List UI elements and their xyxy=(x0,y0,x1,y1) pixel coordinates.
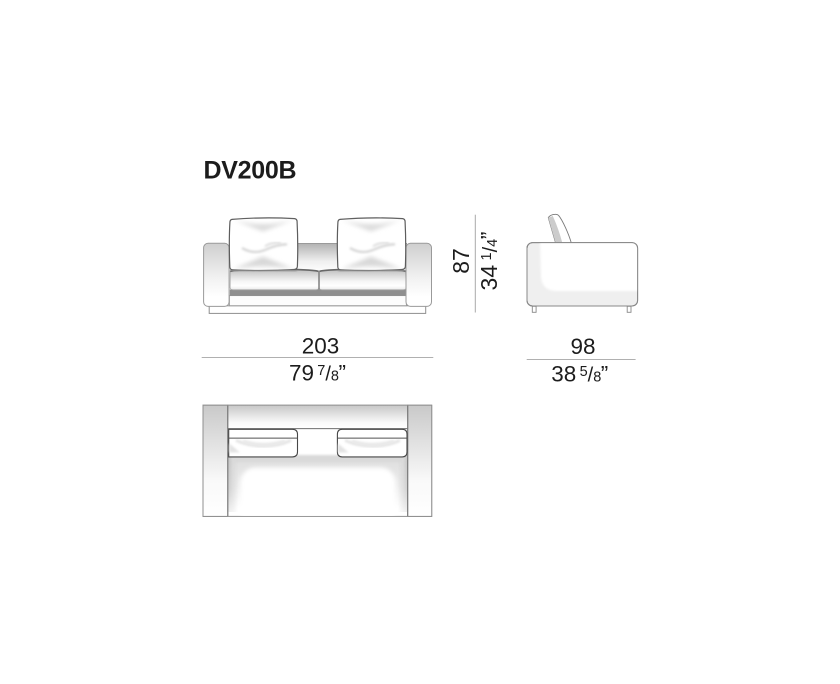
svg-text:203: 203 xyxy=(302,333,340,358)
svg-text:87: 87 xyxy=(448,248,474,274)
svg-text:DV200B: DV200B xyxy=(204,157,297,185)
svg-text:98: 98 xyxy=(570,334,595,359)
